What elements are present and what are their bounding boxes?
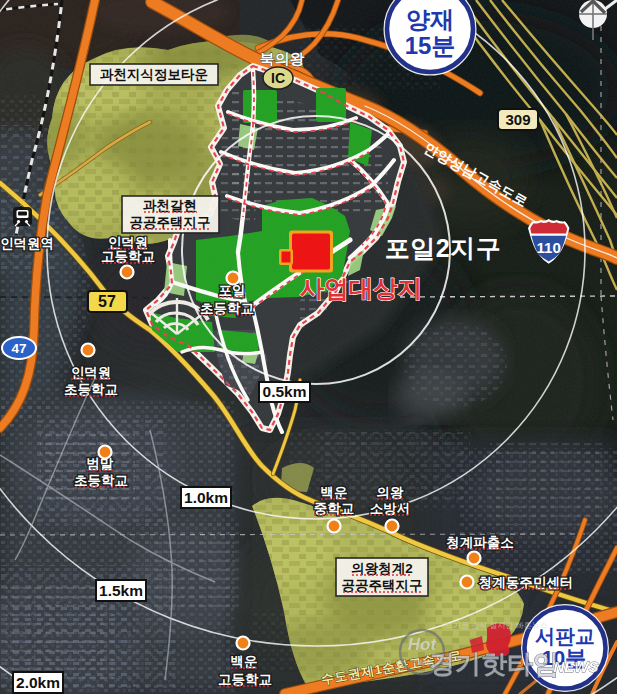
svg-text:북의왕: 북의왕 — [260, 50, 305, 67]
svg-text:2.0km: 2.0km — [16, 674, 60, 691]
svg-text:IC: IC — [271, 70, 285, 86]
svg-text:양재: 양재 — [406, 6, 454, 33]
svg-text:인덕원: 인덕원 — [108, 235, 149, 250]
svg-text:의왕청계2: 의왕청계2 — [351, 561, 413, 576]
svg-text:청계파출소: 청계파출소 — [446, 535, 514, 550]
svg-text:범말: 범말 — [87, 456, 115, 471]
svg-text:청계동주민센터: 청계동주민센터 — [479, 575, 574, 590]
svg-text:의왕: 의왕 — [377, 485, 405, 500]
svg-text:1.5km: 1.5km — [99, 582, 143, 599]
svg-text:포일2지구: 포일2지구 — [385, 234, 501, 262]
svg-text:중학교: 중학교 — [314, 501, 355, 516]
svg-text:1.0km: 1.0km — [184, 489, 228, 506]
svg-text:초등학교: 초등학교 — [64, 382, 118, 397]
svg-text:초등학교: 초등학교 — [200, 301, 254, 316]
svg-text:공공주택지구: 공공주택지구 — [130, 215, 211, 230]
svg-text:110: 110 — [537, 239, 561, 256]
svg-text:57: 57 — [98, 293, 116, 310]
svg-text:백운: 백운 — [321, 485, 348, 500]
svg-text:47: 47 — [11, 341, 26, 356]
svg-text:15분: 15분 — [405, 32, 456, 59]
svg-text:초등학교: 초등학교 — [74, 473, 128, 488]
svg-text:인덕원: 인덕원 — [71, 365, 112, 380]
svg-text:고등학교: 고등학교 — [101, 249, 155, 264]
svg-text:경기핫타임: 경기핫타임 — [429, 649, 559, 679]
svg-text:백운: 백운 — [231, 654, 258, 669]
svg-text:뜨거운 소식 실시간 빠른뉴스: 뜨거운 소식 실시간 빠른뉴스 — [445, 621, 548, 630]
svg-text:0.5km: 0.5km — [263, 383, 307, 400]
svg-text:고등학교: 고등학교 — [218, 672, 272, 687]
svg-text:NEWS: NEWS — [554, 658, 599, 675]
svg-text:공공주택지구: 공공주택지구 — [342, 578, 423, 593]
svg-text:사업대상지: 사업대상지 — [300, 275, 423, 302]
svg-text:소방서: 소방서 — [370, 501, 411, 516]
svg-text:과천지식정보타운: 과천지식정보타운 — [100, 67, 208, 82]
svg-text:309: 309 — [505, 111, 530, 128]
svg-text:과천갈현: 과천갈현 — [143, 198, 197, 213]
svg-text:인덕원역: 인덕원역 — [0, 236, 54, 251]
